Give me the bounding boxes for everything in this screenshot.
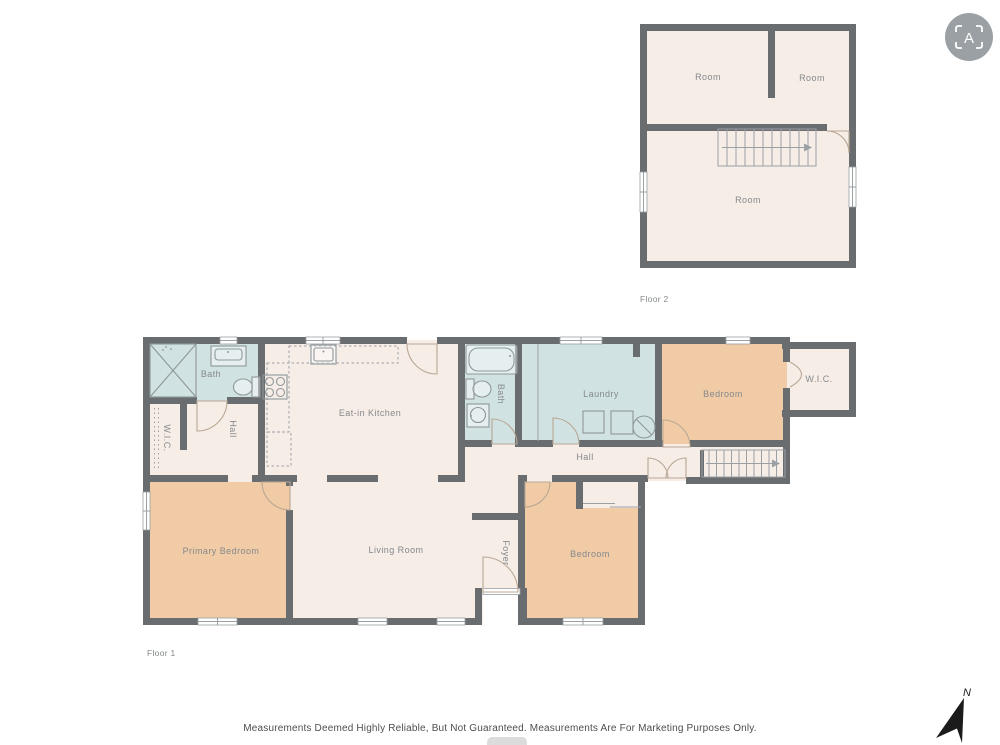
room-label: Living Room xyxy=(369,545,424,555)
logo-letter: A xyxy=(964,30,974,47)
north-arrow-icon xyxy=(936,698,964,743)
room-label: Foyer xyxy=(501,540,511,565)
room-label: Room xyxy=(695,72,721,82)
room-label: Bath xyxy=(496,384,506,404)
compass: N xyxy=(936,687,971,743)
room-label: Hall xyxy=(228,420,238,437)
room-label: W.I.C. xyxy=(162,424,172,451)
brand-logo: A xyxy=(945,13,993,61)
room-label: Room xyxy=(799,73,825,83)
floor2-interior xyxy=(643,27,853,265)
scroll-pill[interactable] xyxy=(487,737,527,745)
room-label: Bedroom xyxy=(703,389,743,399)
floor2-caption: Floor 2 xyxy=(640,294,669,304)
room-label: Primary Bedroom xyxy=(183,546,260,556)
room-label: Bedroom xyxy=(570,549,610,559)
toilet xyxy=(234,379,253,395)
floor-2-plan: Room Room Room Floor 2 xyxy=(640,24,856,304)
north-label: N xyxy=(963,687,971,699)
room-label: Laundry xyxy=(583,389,619,399)
floor1-caption: Floor 1 xyxy=(147,648,176,658)
entry-stoop xyxy=(483,595,520,625)
closet-nook xyxy=(583,482,641,508)
room-label: Bath xyxy=(201,369,221,379)
floor-1-plan: Bath W.I.C. Hall Eat-in Kitchen Bath Lau… xyxy=(143,337,856,658)
floorplan-page: Room Room Room Floor 2 xyxy=(0,0,1000,745)
floorplan-canvas: Room Room Room Floor 2 xyxy=(0,0,1000,745)
room-label: Hall xyxy=(576,452,593,462)
room-label: Eat-in Kitchen xyxy=(339,408,401,418)
room-label: W.I.C. xyxy=(805,374,832,384)
disclaimer-text: Measurements Deemed Highly Reliable, But… xyxy=(243,723,756,734)
room-label: Room xyxy=(735,195,761,205)
